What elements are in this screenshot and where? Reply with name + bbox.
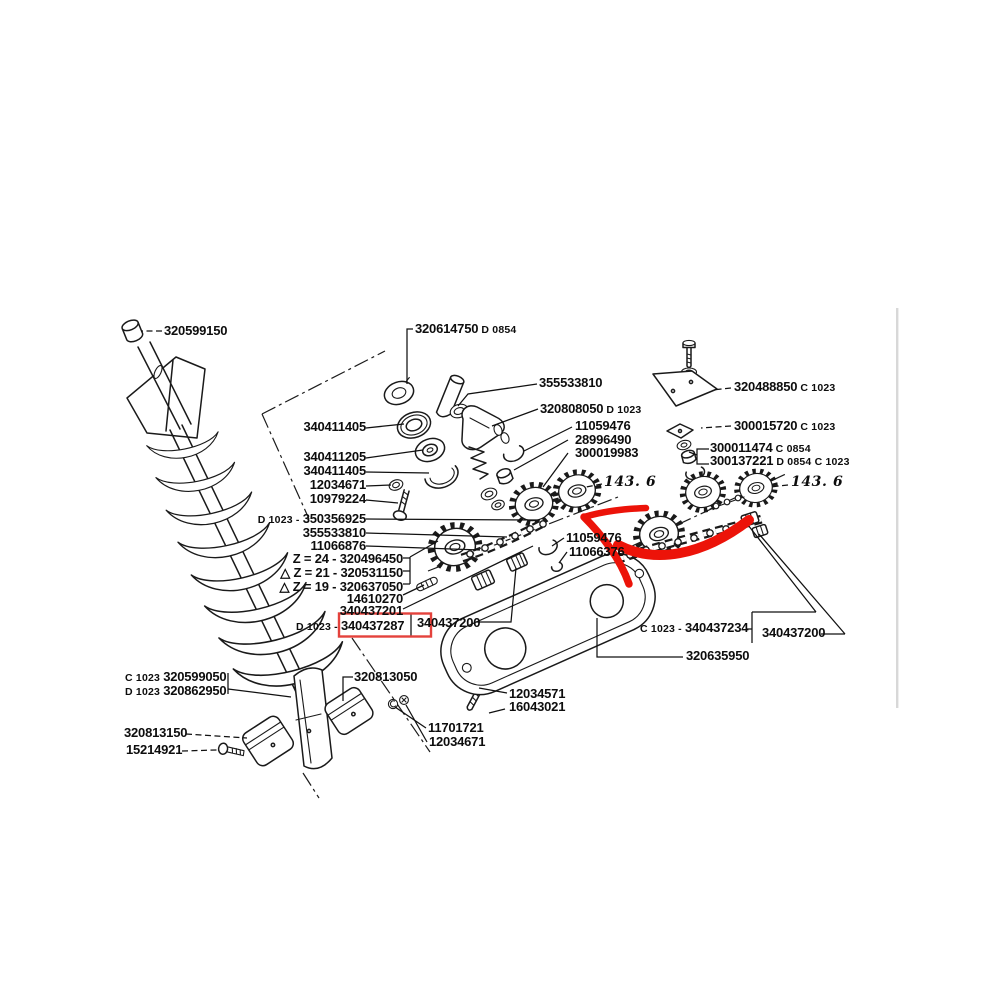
callout-340437200-right: 340437200 bbox=[762, 626, 825, 640]
callout-320635950: 320635950 bbox=[686, 649, 749, 663]
callout-11059476-b: 11059476 bbox=[566, 531, 622, 545]
callout-12034671-b: 12034671 bbox=[429, 735, 485, 749]
parts-diagram-page: 320599150 320614750 D 0854 355533810 320… bbox=[0, 0, 1000, 1000]
callout-11059476: 11059476 bbox=[575, 419, 631, 433]
callout-340437201: 340437201 bbox=[340, 604, 403, 618]
callout-320813150: 320813150 bbox=[124, 726, 187, 740]
callout-340437234: C 1023 - 340437234 bbox=[640, 621, 748, 636]
callout-320808050: 320808050 D 1023 bbox=[540, 402, 641, 417]
callout-320862950: D 1023 320862950 bbox=[125, 684, 226, 699]
callout-16043021: 16043021 bbox=[509, 700, 565, 714]
callout-340437287-highlighted: D 1023 - 340437287 bbox=[296, 619, 404, 634]
callout-320813050: 320813050 bbox=[354, 670, 417, 684]
figure-ref-143-6-center: 143. 6 bbox=[604, 475, 656, 489]
callout-320599150: 320599150 bbox=[164, 324, 227, 338]
callout-z24-320496450: Z = 24 - 320496450 bbox=[293, 552, 403, 566]
lock-washer bbox=[400, 696, 409, 705]
callout-z21-320531150: △ Z = 21 - 320531150 bbox=[280, 566, 403, 580]
scan-artifact-line bbox=[896, 308, 898, 708]
callout-11701721: 11701721 bbox=[428, 721, 484, 735]
callout-340411205: 340411205 bbox=[303, 450, 366, 464]
exploded-view-drawing bbox=[0, 0, 1000, 1000]
callout-15214921: 15214921 bbox=[126, 743, 182, 757]
figure-ref-143-6-right: 143. 6 bbox=[791, 475, 843, 489]
callout-11066376: 11066376 bbox=[569, 545, 625, 559]
callout-10979224: 10979224 bbox=[310, 492, 366, 506]
callout-340437200-center: 340437200 bbox=[417, 616, 480, 630]
callout-340411405-b: 340411405 bbox=[303, 464, 366, 478]
callout-320488850: 320488850 C 1023 bbox=[734, 380, 835, 395]
callout-340411405-a: 340411405 bbox=[303, 420, 366, 434]
callout-300137221: 300137221 D 0854 C 1023 bbox=[710, 454, 850, 469]
callout-320614750: 320614750 D 0854 bbox=[415, 322, 516, 337]
callout-355533810: 355533810 bbox=[539, 376, 602, 390]
callout-300019983: 300019983 bbox=[575, 446, 638, 460]
callout-300015720: 300015720 C 1023 bbox=[734, 419, 835, 434]
callout-12034671-a: 12034671 bbox=[310, 478, 366, 492]
